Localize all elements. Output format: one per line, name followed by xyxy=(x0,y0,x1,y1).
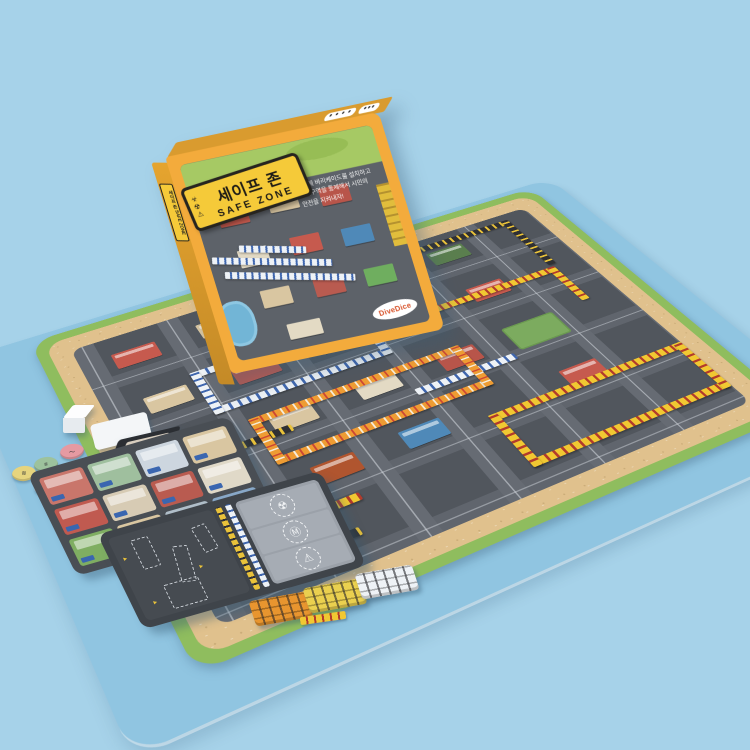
warning-icon: ⚠ xyxy=(291,544,325,573)
mission-card xyxy=(86,453,142,491)
mask-icon: Ⓜ xyxy=(279,518,313,547)
building-tile xyxy=(143,384,195,414)
arrow-marker: ▸ xyxy=(122,555,129,563)
building-tile xyxy=(397,417,451,449)
piece-outline xyxy=(130,536,162,570)
tape-strip-yellow xyxy=(488,413,543,468)
arrow-marker: ▸ xyxy=(198,562,205,570)
tape-strip-yellow xyxy=(547,266,590,300)
product-photo-safe-zone: ● ● ● ● ●●● 세이프 존 SAFE ZONE xyxy=(0,0,750,750)
piece-outline xyxy=(190,523,219,553)
box-cover-art: 도시에 바리케이드를 설치하고 위험구역을 통제해서 시민의 안전을 지켜내자!… xyxy=(179,125,431,362)
logo-badge: ●●● xyxy=(357,102,381,114)
radiation-icon: ☢ xyxy=(266,491,300,520)
cover-tape-strip xyxy=(239,246,307,254)
mission-card xyxy=(182,425,238,463)
park-tile xyxy=(501,312,573,351)
mission-card xyxy=(38,467,94,505)
piece-outline xyxy=(163,576,209,610)
building-tile xyxy=(111,341,163,369)
game-box: ● ● ● ● ●●● 세이프 존 SAFE ZONE xyxy=(165,112,445,374)
white-die xyxy=(68,405,90,433)
warning-icon: ⚠ xyxy=(196,211,205,220)
arrow-marker: ▸ xyxy=(152,598,159,606)
mission-card xyxy=(134,439,190,477)
die-front-face xyxy=(63,418,85,433)
